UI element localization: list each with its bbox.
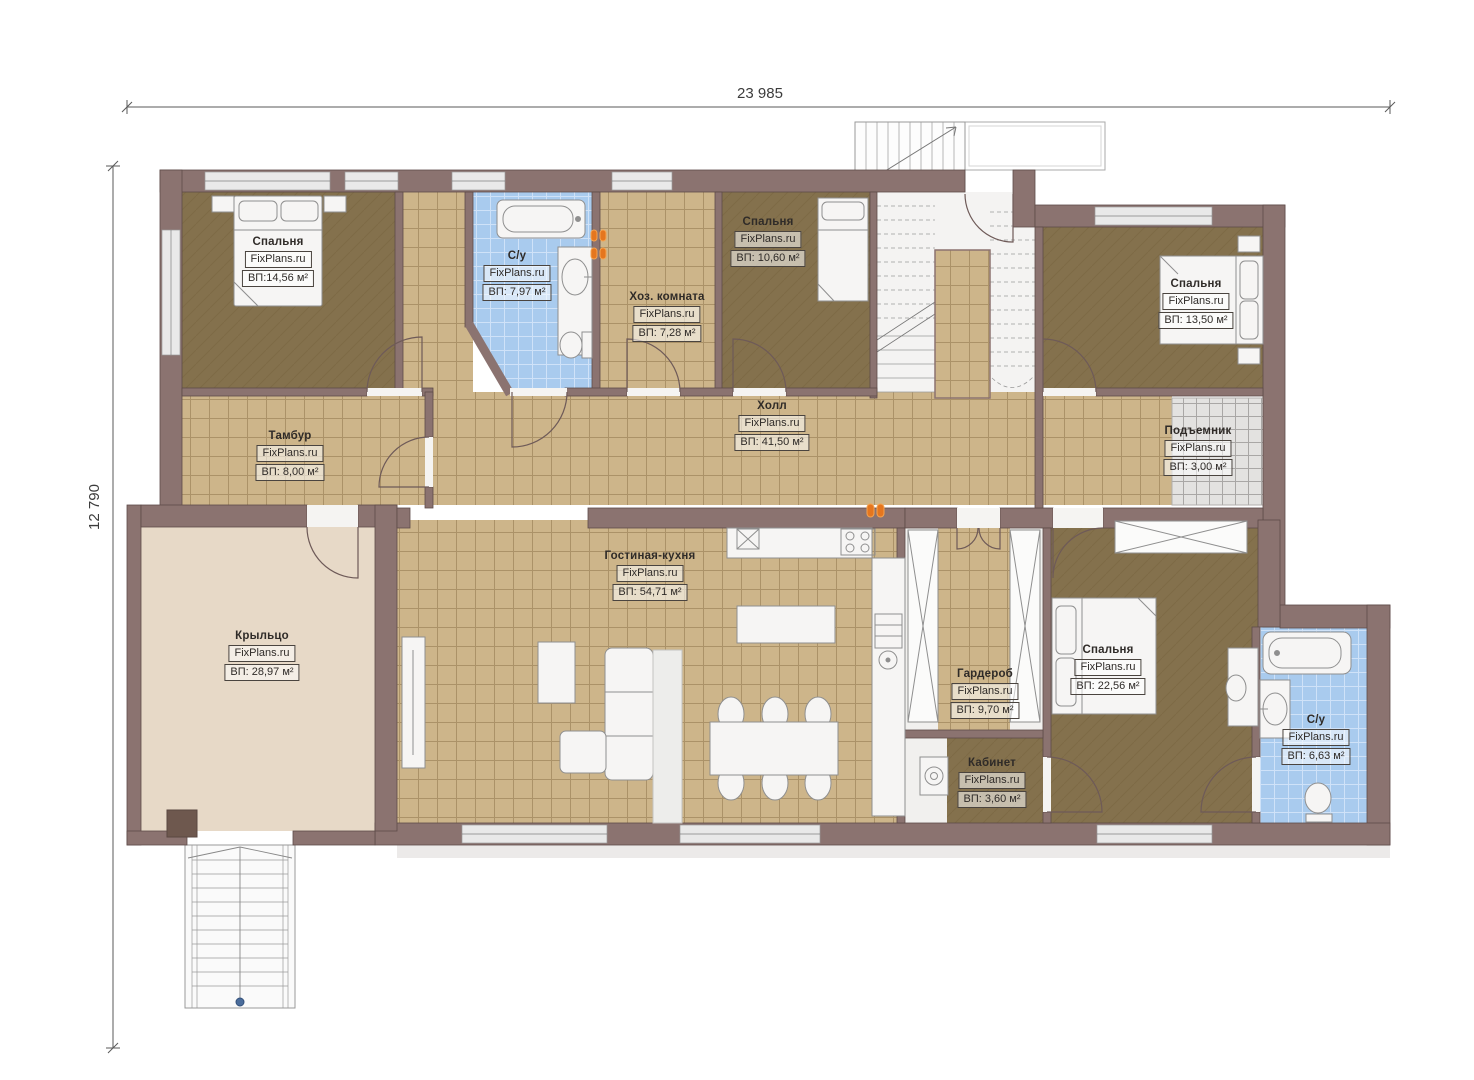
floor-cabinet — [947, 738, 1043, 823]
porch-stair-bottom — [185, 845, 295, 1008]
bed-icon — [818, 198, 868, 301]
floor-wardrobe-center — [938, 520, 1010, 738]
wall-right-lower — [1367, 605, 1390, 845]
wall-top-patch — [1013, 170, 1035, 227]
window — [162, 230, 180, 355]
nightstand — [212, 196, 234, 212]
dimension-height: 12 790 — [86, 161, 120, 1053]
dimension-height-label: 12 790 — [86, 484, 103, 530]
dimension-width: 23 985 — [122, 85, 1395, 114]
wall-porch-right — [375, 505, 397, 831]
bathtub-icon — [497, 200, 585, 238]
floor-lift — [1172, 398, 1263, 505]
floor-vestibule — [182, 392, 425, 505]
wardrobe-unit — [1010, 530, 1040, 722]
window — [205, 172, 330, 190]
window — [345, 172, 398, 190]
floor-porch — [141, 517, 375, 831]
wall-porch-bottom-b — [293, 831, 375, 845]
bed-icon — [1052, 598, 1156, 714]
floor-plan-drawing: 23 985 12 790 — [0, 0, 1474, 1080]
dining-table-icon — [710, 697, 838, 800]
window — [612, 172, 672, 190]
floor-corridor-strip — [395, 192, 473, 392]
wall-porch-left — [127, 505, 141, 845]
wardrobe-unit — [908, 530, 938, 722]
desk-icon — [1226, 648, 1258, 726]
window — [680, 825, 820, 843]
porch-mat — [167, 810, 197, 837]
partition — [653, 650, 682, 823]
floor-hall — [425, 392, 1172, 505]
toilet-icon — [1305, 783, 1332, 822]
bathtub-icon — [1263, 632, 1351, 674]
nightstand — [1238, 348, 1260, 364]
window — [452, 172, 505, 190]
window — [462, 825, 607, 843]
washer-icon — [920, 757, 948, 795]
bed-icon — [234, 196, 322, 306]
coffee-table — [538, 642, 575, 703]
toilet-icon — [560, 332, 592, 358]
nightstand — [1238, 236, 1260, 252]
window — [1095, 207, 1212, 225]
chair — [1226, 675, 1246, 701]
floor-plan-page: 23 985 12 790 — [0, 0, 1474, 1080]
shadow-bottom — [397, 845, 1390, 858]
nightstand — [324, 196, 346, 212]
window — [1097, 825, 1212, 843]
dimension-width-label: 23 985 — [737, 85, 783, 102]
kitchen-island — [737, 606, 835, 643]
bed-icon — [1160, 256, 1263, 344]
wall-porch-top-a — [141, 505, 307, 527]
tv-console — [402, 637, 425, 768]
floor-utility — [600, 192, 715, 392]
wardrobe-unit — [1115, 521, 1247, 553]
